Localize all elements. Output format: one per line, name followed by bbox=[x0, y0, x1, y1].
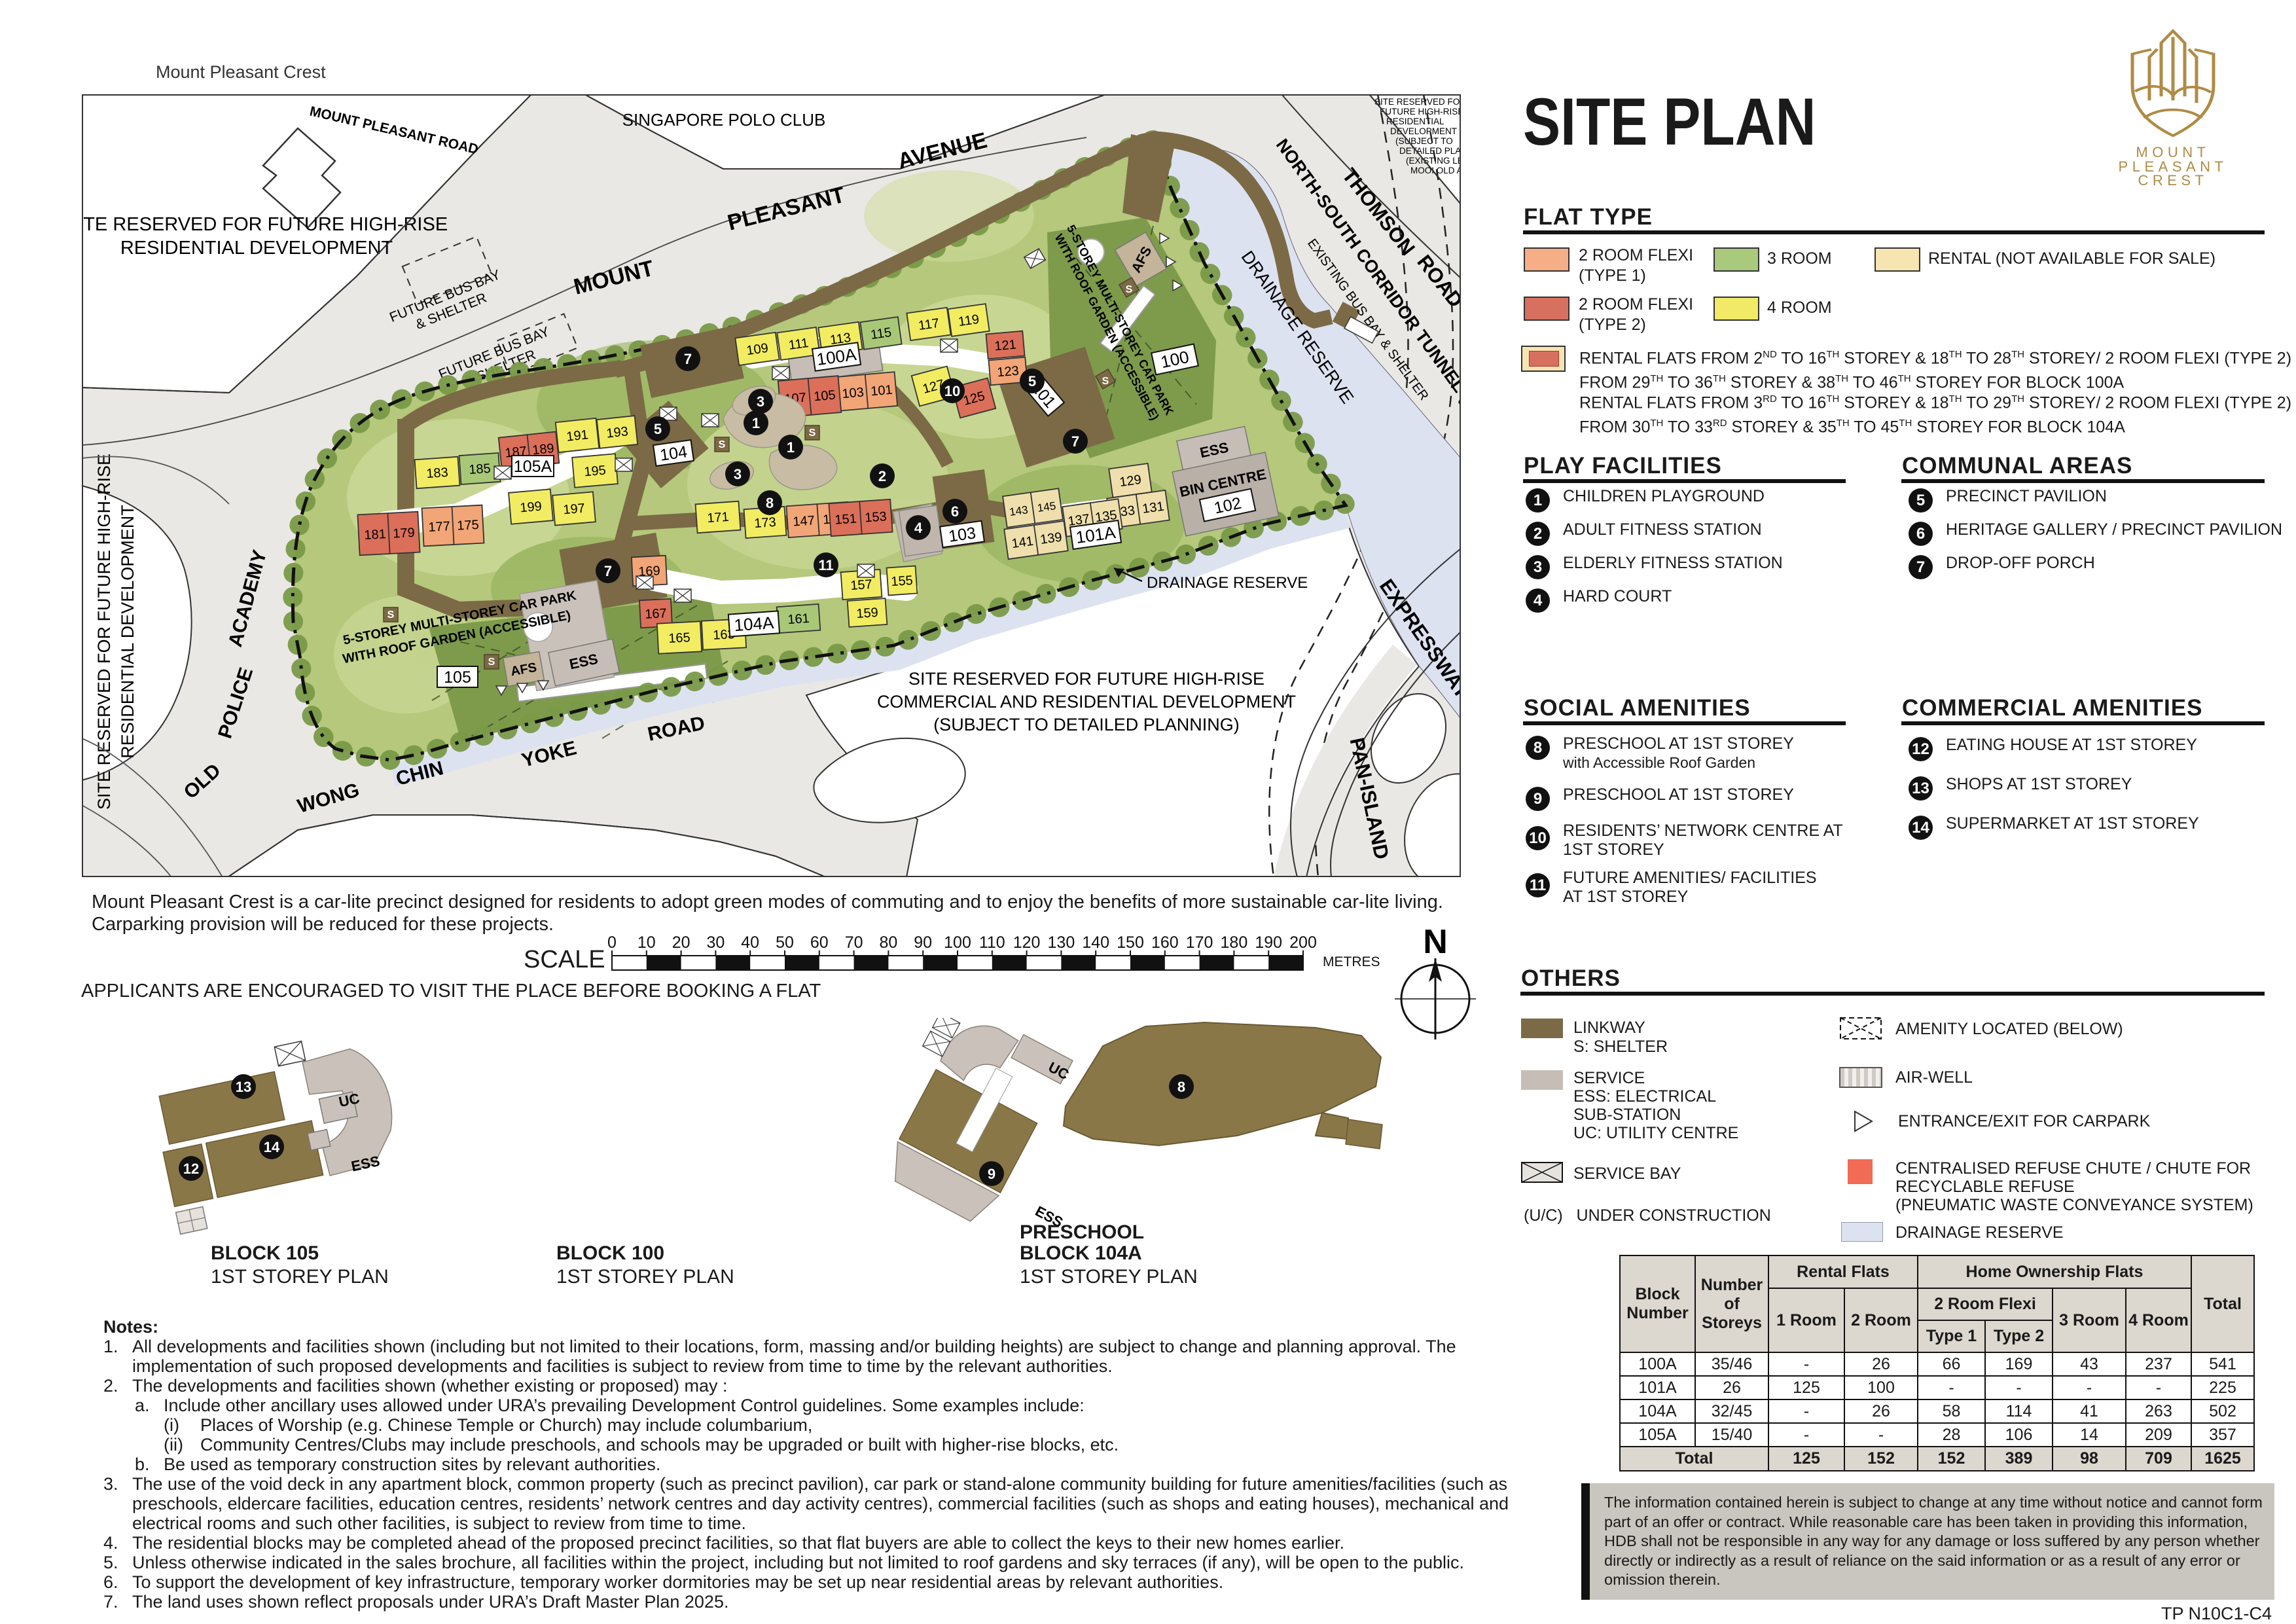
svg-text:200: 200 bbox=[1289, 933, 1317, 952]
svg-text:120: 120 bbox=[1013, 933, 1041, 952]
svg-text:100: 100 bbox=[944, 933, 971, 952]
svg-text:130: 130 bbox=[1048, 933, 1075, 952]
svg-text:10: 10 bbox=[637, 933, 656, 952]
svg-text:40: 40 bbox=[741, 933, 759, 952]
svg-text:90: 90 bbox=[914, 933, 932, 952]
svg-text:14: 14 bbox=[264, 1139, 280, 1155]
svg-text:8: 8 bbox=[1177, 1079, 1185, 1095]
svg-text:N: N bbox=[1423, 923, 1448, 961]
svg-text:190: 190 bbox=[1255, 933, 1282, 952]
svg-text:180: 180 bbox=[1221, 933, 1248, 952]
svg-text:METRES: METRES bbox=[1323, 954, 1380, 969]
svg-text:80: 80 bbox=[879, 933, 897, 952]
svg-text:12: 12 bbox=[183, 1161, 199, 1177]
svg-text:140: 140 bbox=[1082, 933, 1109, 952]
svg-text:30: 30 bbox=[706, 933, 725, 952]
svg-text:150: 150 bbox=[1117, 933, 1144, 952]
svg-text:70: 70 bbox=[845, 933, 863, 952]
svg-text:50: 50 bbox=[776, 933, 794, 952]
svg-text:0: 0 bbox=[607, 933, 617, 952]
svg-text:170: 170 bbox=[1186, 933, 1213, 952]
svg-text:20: 20 bbox=[672, 933, 691, 952]
svg-text:13: 13 bbox=[236, 1079, 251, 1095]
svg-text:160: 160 bbox=[1151, 933, 1179, 952]
svg-text:9: 9 bbox=[988, 1166, 996, 1182]
svg-text:110: 110 bbox=[979, 933, 1005, 952]
svg-text:60: 60 bbox=[810, 933, 829, 952]
